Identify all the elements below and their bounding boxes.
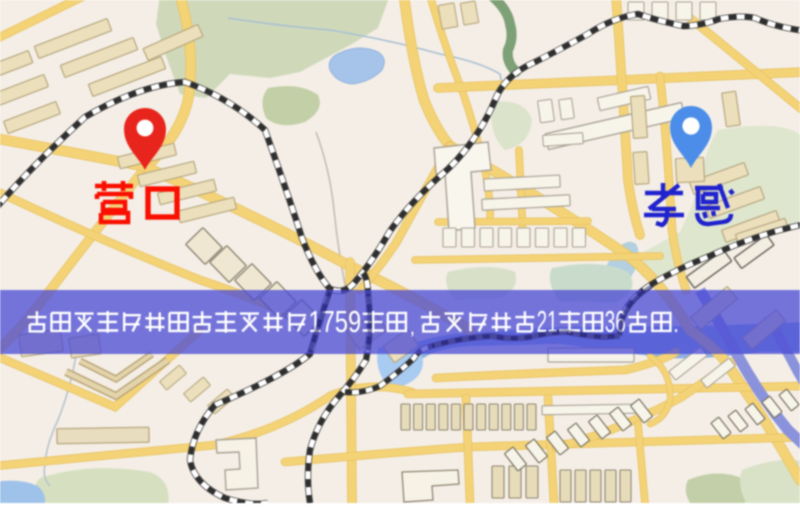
svg-text:.: . xyxy=(673,308,679,338)
svg-text:,: , xyxy=(410,317,416,339)
